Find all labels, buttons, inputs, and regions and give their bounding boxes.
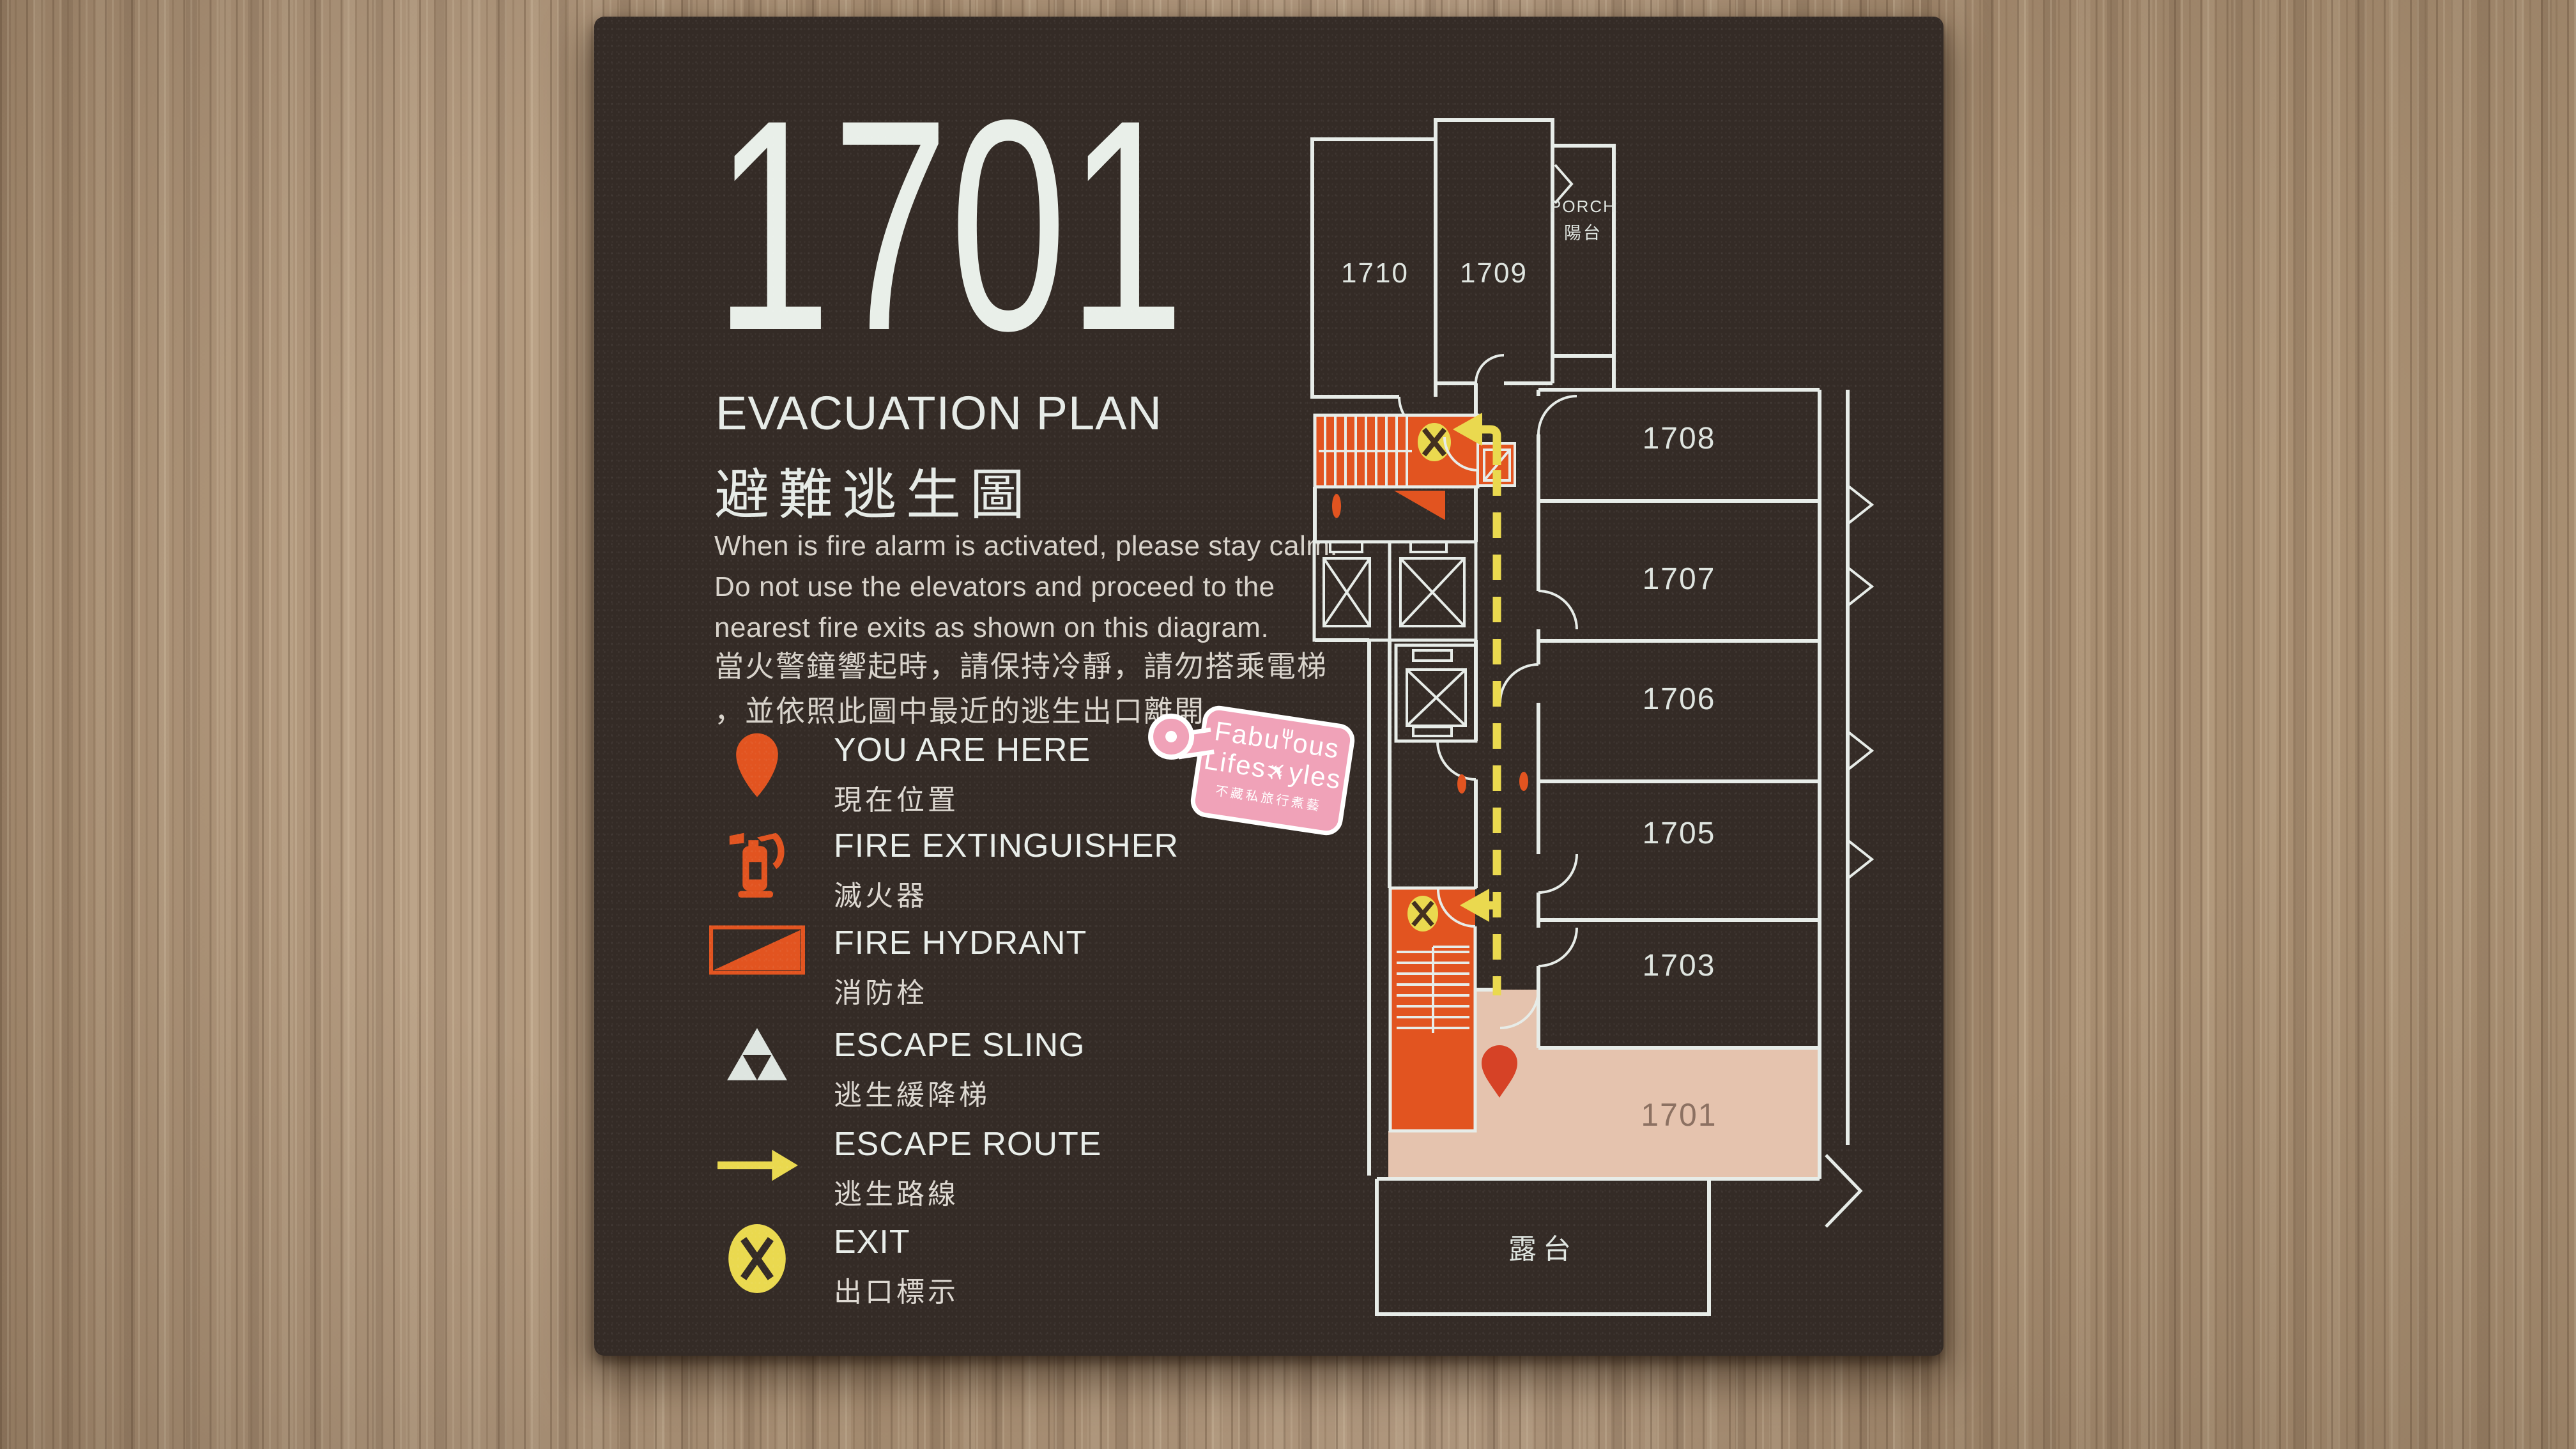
terrace-label: 露台 (1508, 1234, 1577, 1265)
legend-label-en: FIRE EXTINGUISHER (834, 827, 1179, 865)
legend-item-fire-hydrant: FIRE HYDRANT 消防栓 (703, 924, 1278, 1013)
heading-zh: 避難逃生圖 (714, 450, 1034, 530)
elevator-bank (1314, 542, 1476, 741)
porch-label-zh: 陽台 (1564, 224, 1602, 243)
legend-item-escape-route: ESCAPE ROUTE 逃生路線 (703, 1125, 1278, 1215)
escape-sling-icon (703, 1026, 811, 1106)
instructions-en: When is fire alarm is activated, please … (714, 526, 1338, 648)
room-label-1710: 1710 (1341, 257, 1409, 289)
legend-label-zh: 滅火器 (834, 873, 1179, 914)
floor-plan: 1710 1709 PORCH 陽台 1708 1707 1706 1705 1… (1303, 115, 1878, 1322)
legend-label-en: EXIT (834, 1223, 959, 1261)
room-number: 1701 (714, 75, 1186, 376)
legend-label-zh: 消防栓 (834, 970, 1087, 1011)
you-are-here-pin-icon (703, 731, 811, 811)
room-label-1705: 1705 (1643, 816, 1716, 850)
fire-hydrant-icon (703, 924, 811, 1004)
room-label-1701: 1701 (1641, 1097, 1717, 1133)
room-label-1707: 1707 (1643, 562, 1716, 596)
legend-item-escape-sling: ESCAPE SLING 逃生緩降梯 (703, 1026, 1278, 1115)
heading-en: EVACUATION PLAN (716, 386, 1162, 440)
legend-label-zh: 逃生緩降梯 (834, 1072, 1085, 1113)
escape-route-icon (703, 1125, 811, 1205)
fire-extinguisher-icon (703, 827, 811, 907)
legend-label-en: FIRE HYDRANT (834, 924, 1087, 962)
lower-stairwell (1390, 888, 1475, 1131)
legend-label-en: ESCAPE SLING (834, 1026, 1085, 1064)
room-label-1709: 1709 (1460, 257, 1528, 289)
legend-label-en: YOU ARE HERE (834, 731, 1091, 769)
instructions-en-line2: Do not use the elevators and proceed to … (714, 567, 1338, 608)
porch-label-en: PORCH (1550, 197, 1616, 216)
evacuation-sign-panel: 1701 EVACUATION PLAN 避難逃生圖 When is fire … (594, 17, 1943, 1356)
room-label-1708: 1708 (1643, 422, 1716, 456)
room-label-1703: 1703 (1643, 949, 1716, 983)
legend-item-exit: EXIT 出口標示 (703, 1223, 1278, 1312)
exit-icon (703, 1223, 811, 1303)
instructions-en-line1: When is fire alarm is activated, please … (714, 526, 1338, 567)
legend-label-zh: 逃生路線 (834, 1171, 1101, 1212)
legend-label-zh: 現在位置 (834, 777, 1091, 818)
instructions-zh-line1: 當火警鐘響起時，請保持冷靜，請勿搭乘電梯 (714, 644, 1328, 689)
legend-item-fire-extinguisher: FIRE EXTINGUISHER 滅火器 (703, 827, 1278, 916)
legend-label-en: ESCAPE ROUTE (834, 1125, 1101, 1163)
legend-label-zh: 出口標示 (834, 1269, 959, 1310)
watermark-logo: Fabuous Lifes✈yles 不藏私旅行煮藝 (1188, 703, 1356, 838)
room-label-1706: 1706 (1643, 682, 1716, 716)
instructions-en-line3: nearest fire exits as shown on this diag… (714, 608, 1338, 648)
